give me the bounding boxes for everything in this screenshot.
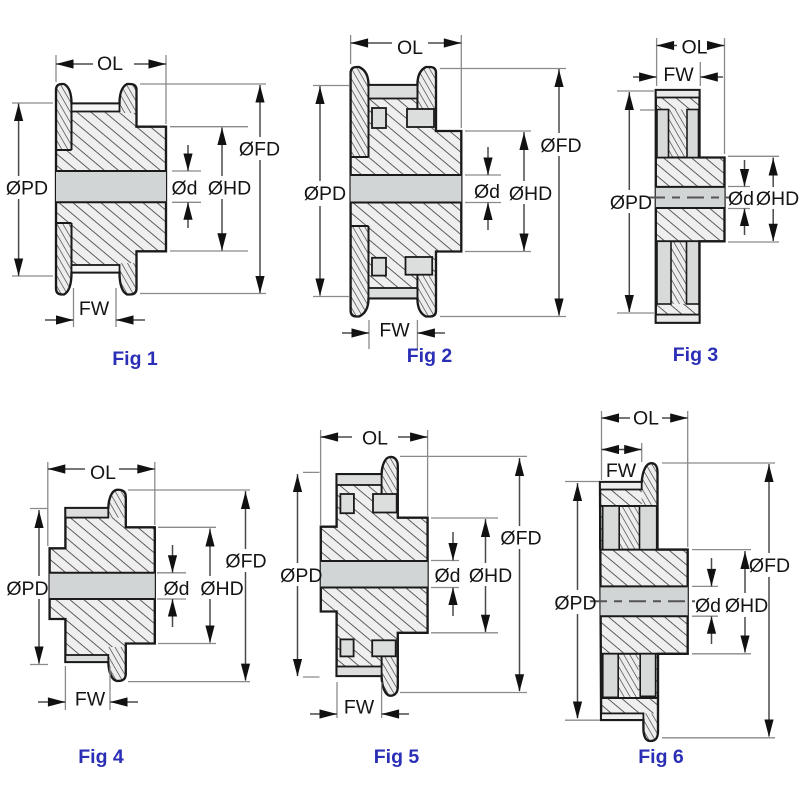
svg-text:ØHD: ØHD [208,178,251,200]
svg-text:Ød: Ød [728,188,754,210]
svg-text:Fig 4: Fig 4 [78,746,124,768]
svg-text:Ød: Ød [695,595,721,617]
svg-text:ØFD: ØFD [500,528,541,550]
svg-text:ØPD: ØPD [304,183,346,205]
svg-text:OL: OL [362,428,388,450]
svg-text:OL: OL [633,408,659,430]
svg-text:ØFD: ØFD [540,135,581,157]
svg-text:ØPD: ØPD [6,578,48,600]
svg-text:Fig 5: Fig 5 [374,746,420,768]
svg-text:Ød: Ød [163,578,189,600]
svg-text:ØHD: ØHD [509,183,552,205]
svg-text:ØFD: ØFD [749,555,790,577]
svg-text:ØFD: ØFD [225,551,266,573]
svg-text:Ød: Ød [474,181,500,203]
svg-text:ØFD: ØFD [239,139,280,161]
svg-text:OL: OL [397,37,423,59]
svg-text:Fig 2: Fig 2 [407,345,453,367]
svg-text:Fig 1: Fig 1 [112,348,158,370]
svg-text:OL: OL [97,53,123,75]
svg-text:ØHD: ØHD [469,565,512,587]
svg-text:FW: FW [344,697,375,719]
svg-text:ØHD: ØHD [200,578,243,600]
svg-text:ØPD: ØPD [610,192,652,214]
svg-text:FW: FW [79,298,110,320]
svg-text:ØHD: ØHD [725,595,768,617]
svg-text:OL: OL [90,462,116,484]
svg-text:Ød: Ød [171,178,197,200]
svg-text:OL: OL [681,37,707,59]
svg-text:Fig 3: Fig 3 [673,344,719,366]
svg-text:FW: FW [606,460,637,482]
svg-text:ØPD: ØPD [554,593,596,615]
svg-text:Fig 6: Fig 6 [638,746,684,768]
svg-text:ØPD: ØPD [6,178,48,200]
svg-text:FW: FW [663,64,694,86]
svg-text:FW: FW [75,689,106,711]
svg-text:Ød: Ød [434,565,460,587]
svg-text:FW: FW [379,320,410,342]
svg-text:ØPD: ØPD [280,565,322,587]
svg-text:ØHD: ØHD [756,188,799,210]
